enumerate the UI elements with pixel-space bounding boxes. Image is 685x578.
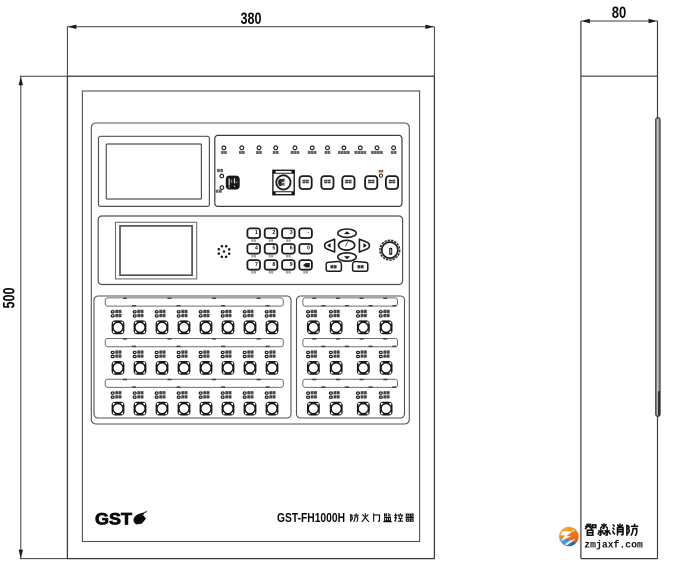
svg-text:GST: GST	[95, 511, 132, 529]
svg-text:7: 7	[255, 262, 258, 268]
svg-text:GST-FH1000H: GST-FH1000H	[277, 511, 345, 525]
svg-text:6: 6	[290, 246, 293, 252]
svg-text:2: 2	[272, 230, 275, 236]
svg-text:4: 4	[255, 246, 258, 252]
svg-text:5: 5	[272, 246, 275, 252]
svg-text:8: 8	[272, 262, 275, 268]
svg-text:zmjaxf.com: zmjaxf.com	[584, 539, 643, 551]
svg-text:9: 9	[290, 262, 293, 268]
svg-text:1: 1	[255, 230, 258, 236]
svg-text:80: 80	[612, 3, 627, 22]
svg-text:500: 500	[0, 288, 19, 309]
svg-text:3: 3	[290, 230, 293, 236]
svg-text:380: 380	[241, 9, 262, 28]
svg-text:0: 0	[307, 246, 310, 252]
svg-text:-: -	[308, 230, 310, 236]
